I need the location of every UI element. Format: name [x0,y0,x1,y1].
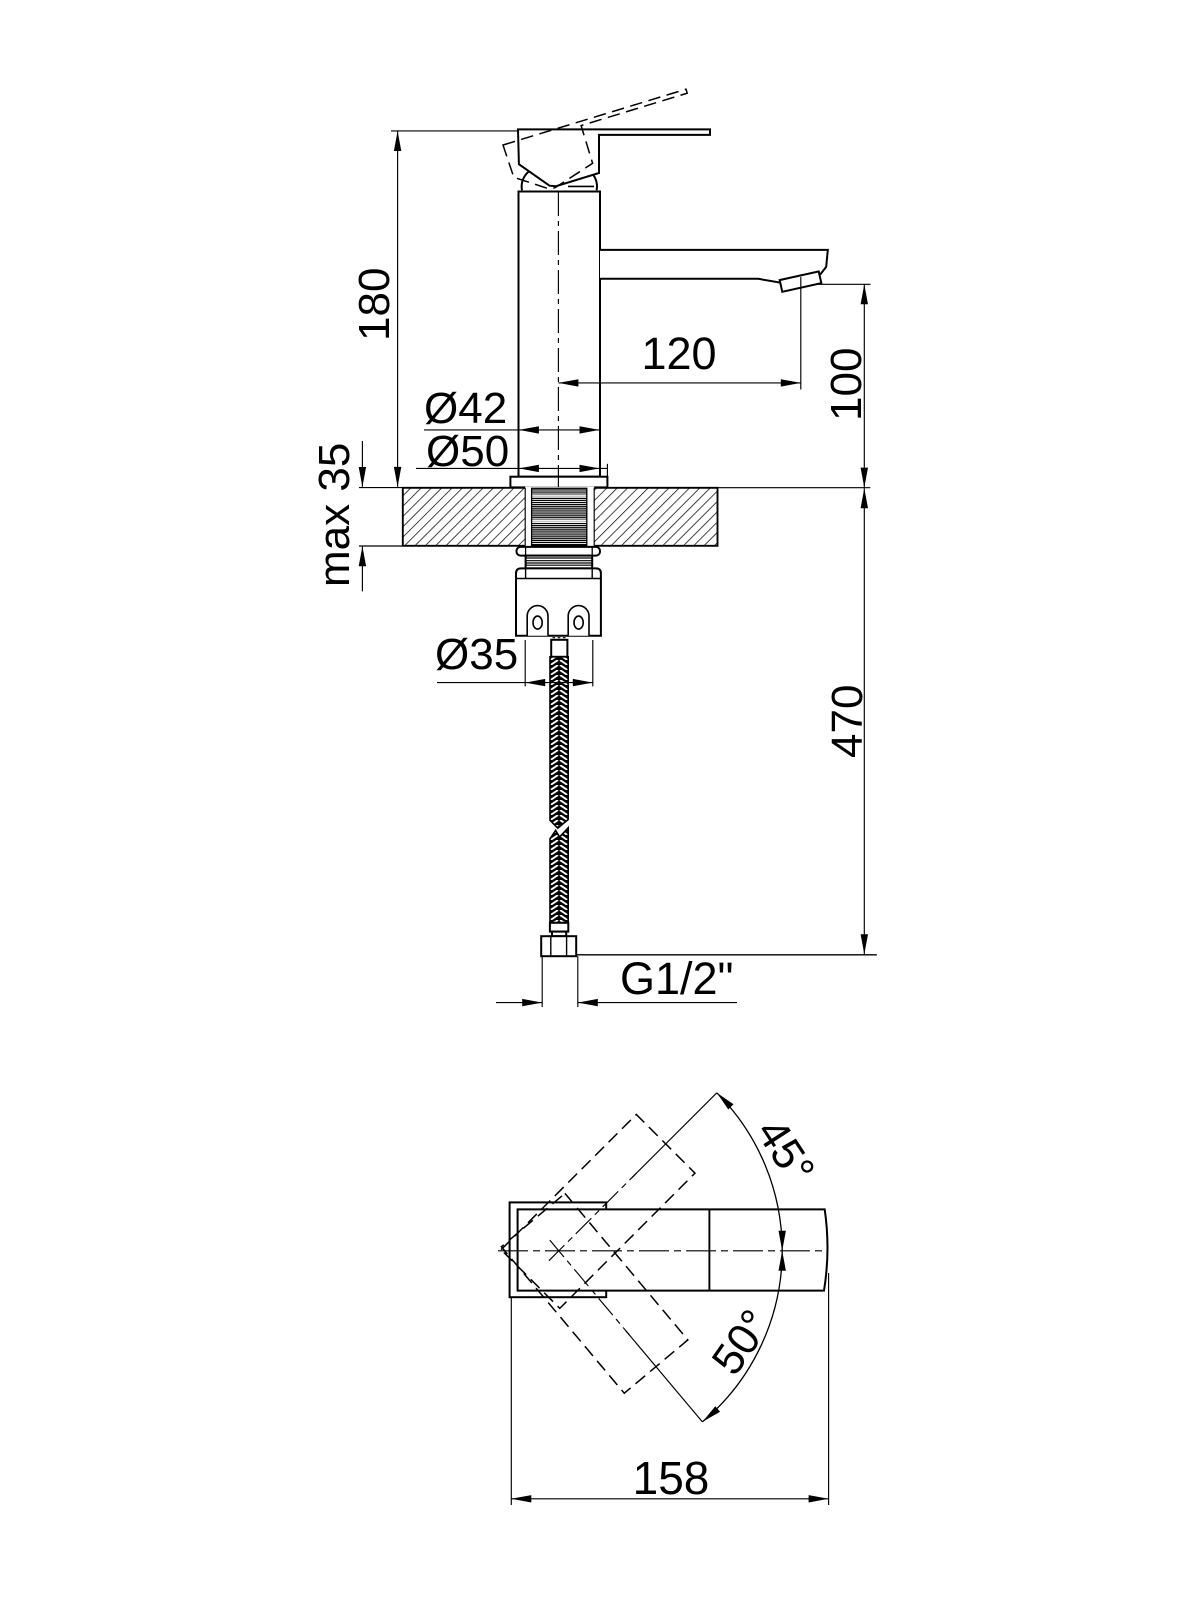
svg-text:Ø42: Ø42 [424,384,507,433]
svg-text:120: 120 [641,328,716,379]
svg-text:G1/2": G1/2" [620,953,734,1004]
svg-text:Ø35: Ø35 [435,630,518,679]
svg-text:158: 158 [633,1452,710,1504]
svg-text:max 35: max 35 [310,443,359,587]
svg-text:100: 100 [822,348,871,421]
svg-text:180: 180 [350,268,399,341]
svg-text:470: 470 [823,685,872,758]
